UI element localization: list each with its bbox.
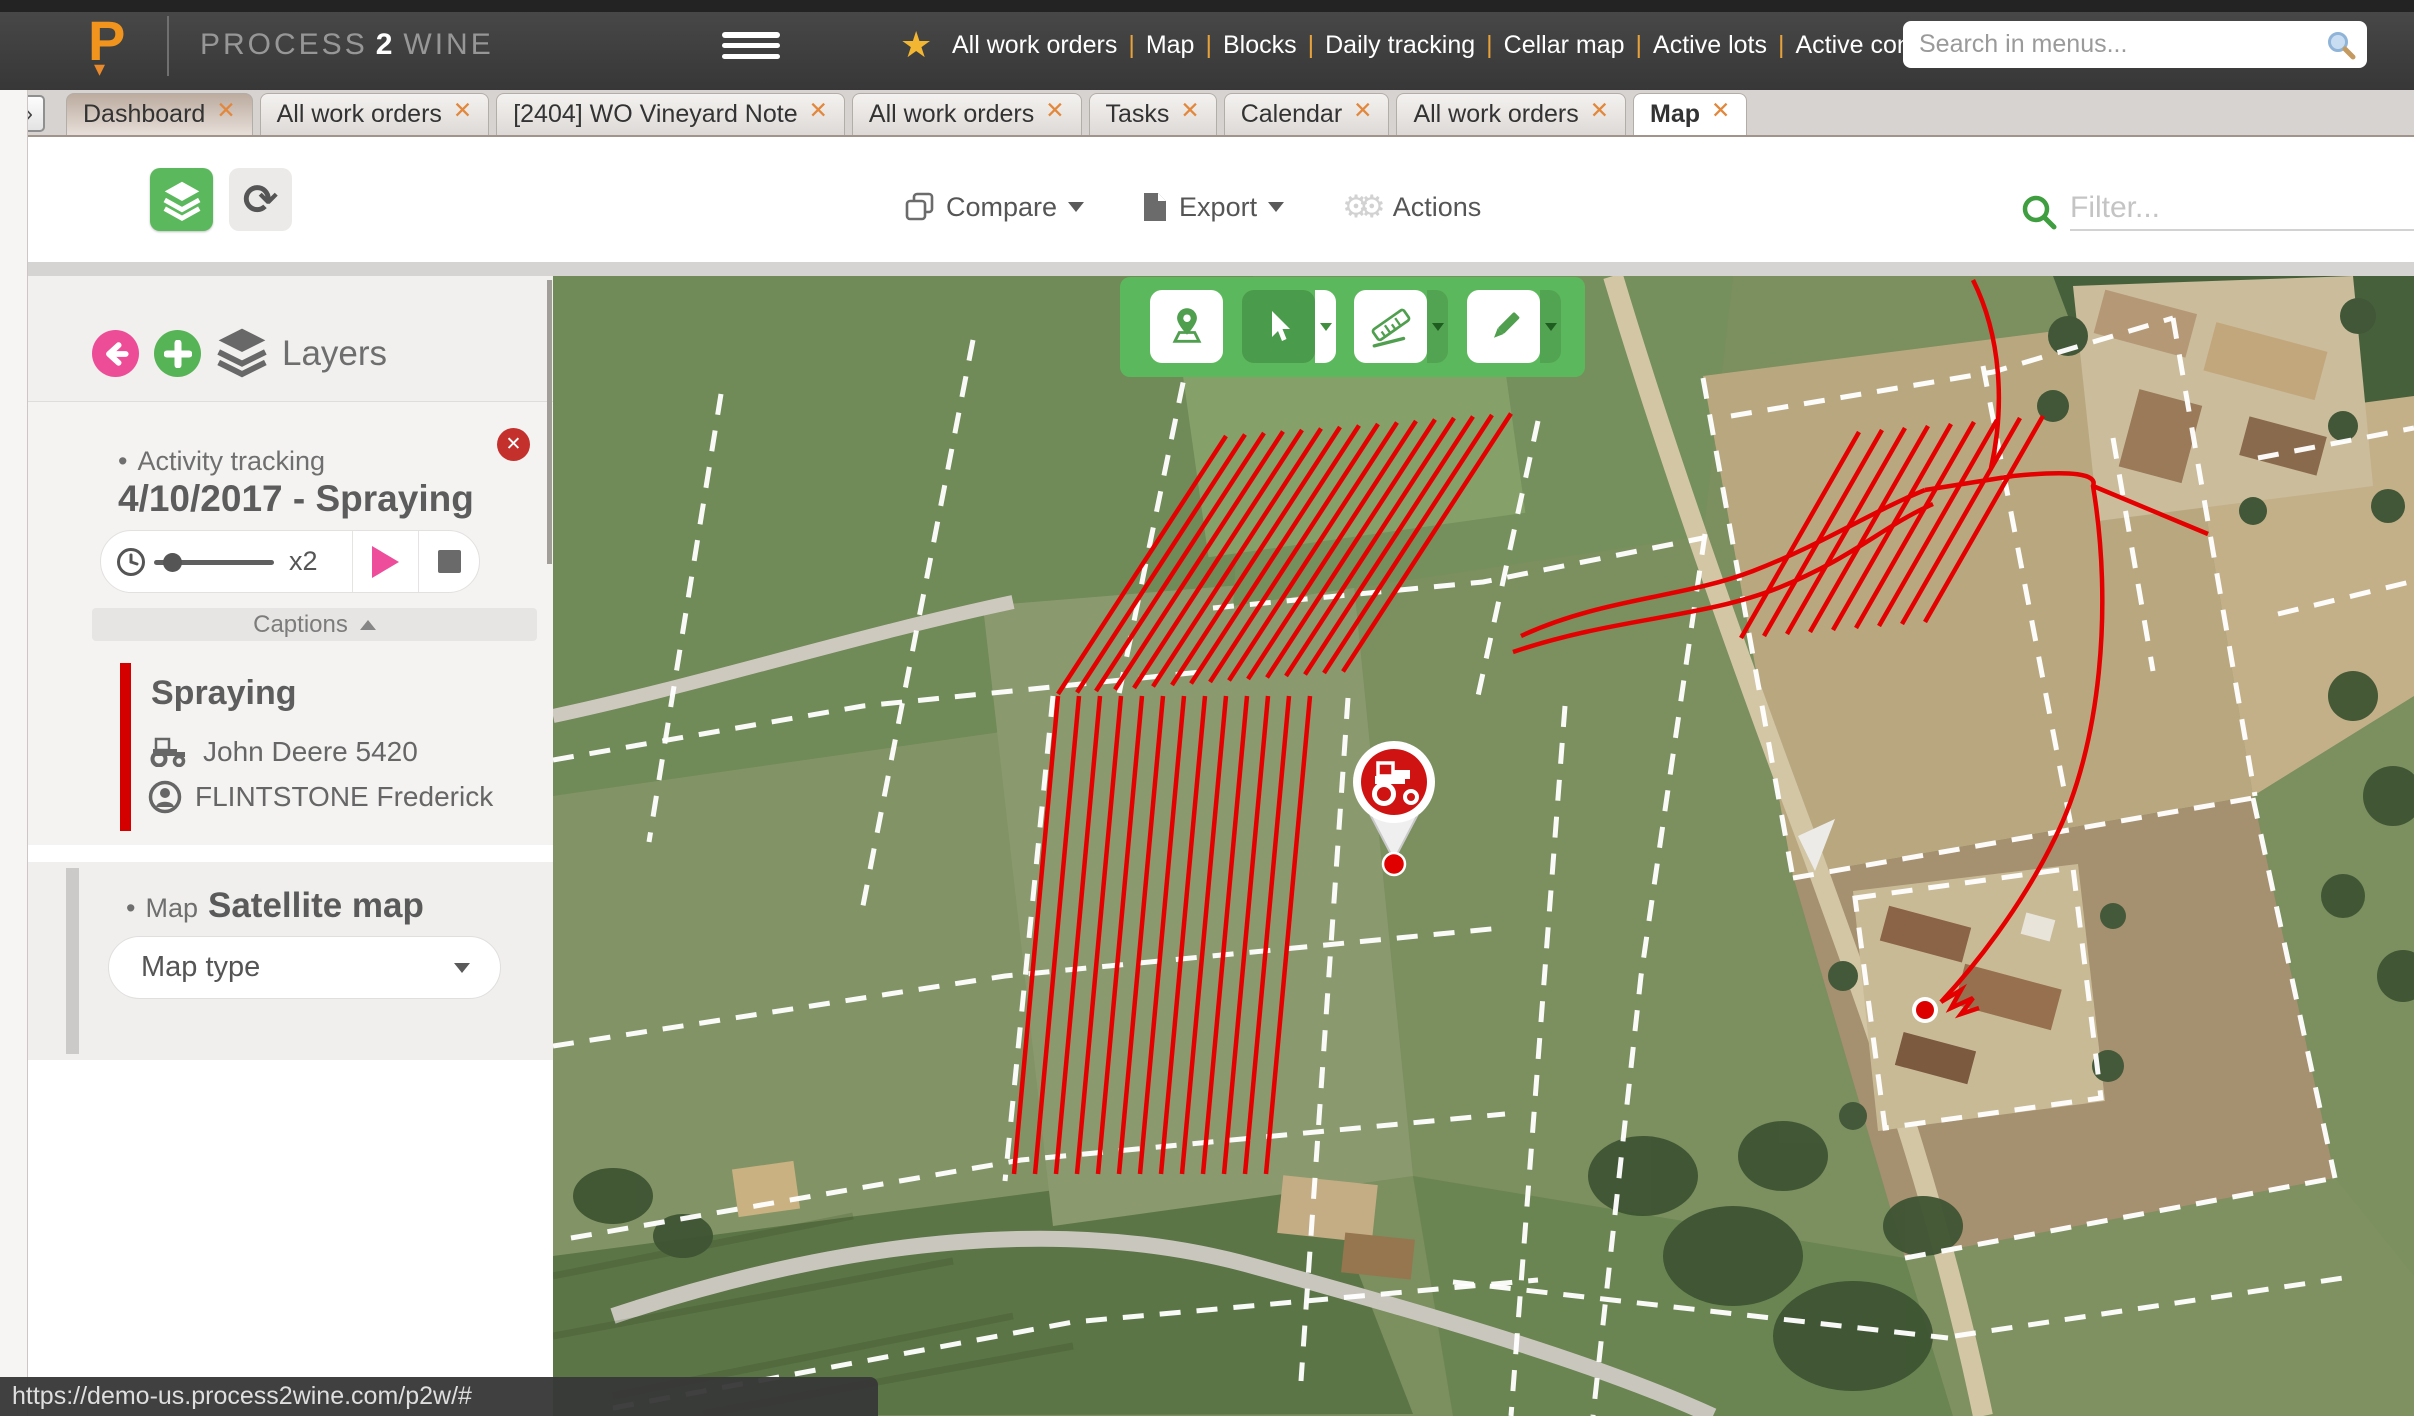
search-icon[interactable]	[2325, 29, 2357, 61]
clock-icon	[116, 547, 146, 577]
play-icon	[372, 546, 399, 578]
refresh-icon: ⟳	[243, 175, 278, 224]
add-layer-button[interactable]	[154, 330, 201, 377]
arrow-left-icon	[101, 339, 131, 369]
map-section-label: • Map Satellite map	[126, 886, 424, 926]
close-activity-button[interactable]: ✕	[497, 428, 530, 461]
tab-all-work-orders[interactable]: All work orders✕	[852, 93, 1082, 135]
left-rail	[0, 90, 28, 1416]
filter-input[interactable]	[2070, 187, 2414, 231]
tab-all-work-orders[interactable]: All work orders✕	[260, 93, 490, 135]
activity-label-text: Activity tracking	[137, 446, 325, 477]
panel-title: Layers	[282, 334, 387, 374]
tab-tasks[interactable]: Tasks✕	[1089, 93, 1217, 135]
caret-down-icon	[1320, 323, 1332, 331]
tab-close-icon[interactable]: ✕	[1045, 97, 1064, 124]
tab--2404-wo-vineyard-note[interactable]: [2404] WO Vineyard Note✕	[496, 93, 845, 135]
back-button[interactable]	[92, 330, 139, 377]
timeline-segment: x2	[101, 531, 352, 592]
actions-button[interactable]: ⚙⚙ Actions	[1342, 189, 1481, 225]
activity-heading: 4/10/2017 - Spraying	[118, 478, 474, 520]
menu-separator: |	[1767, 31, 1796, 60]
menu-item-cellar-map[interactable]: Cellar map	[1504, 31, 1625, 60]
menu-item-active-lots[interactable]: Active lots	[1653, 31, 1767, 60]
panel-scrollbar[interactable]	[547, 280, 552, 564]
map-type-label: Map type	[141, 951, 260, 984]
locate-button[interactable]	[1150, 290, 1223, 363]
stop-icon	[438, 550, 461, 573]
time-slider[interactable]	[154, 552, 274, 572]
export-button[interactable]: Export	[1142, 189, 1284, 225]
menu-separator: |	[1117, 31, 1146, 60]
brand-text: PROCESS 2 WINE	[200, 0, 494, 90]
tab-bar: » Dashboard✕All work orders✕[2404] WO Vi…	[0, 90, 2414, 137]
stop-button[interactable]	[418, 531, 479, 592]
caret-down-icon	[1432, 323, 1444, 331]
menu-item-blocks[interactable]: Blocks	[1223, 31, 1297, 60]
center-tools: Compare Export ⚙⚙ Actions	[905, 189, 1481, 225]
layers-toggle-button[interactable]	[150, 168, 213, 231]
map-heading: Satellite map	[208, 886, 424, 926]
actions-label: Actions	[1393, 192, 1482, 223]
tab-label: Map	[1650, 100, 1700, 129]
logo-divider	[167, 16, 169, 76]
captions-toggle[interactable]: Captions	[92, 608, 537, 641]
measure-options-caret[interactable]	[1427, 290, 1448, 363]
hamburger-icon[interactable]	[722, 32, 780, 59]
gears-icon: ⚙⚙	[1342, 189, 1374, 225]
brand-2: 2	[376, 28, 396, 62]
panel-inner-scrollbar[interactable]	[66, 868, 79, 1054]
export-caret-icon	[1268, 202, 1284, 212]
app-window: P ▾ PROCESS 2 WINE ★ All work orders|Map…	[0, 0, 2414, 1416]
menu-search-input[interactable]	[1919, 30, 2325, 59]
pencil-icon	[1483, 306, 1525, 348]
draw-button[interactable]	[1467, 290, 1540, 363]
map-toolbar-row: ⟳ Compare Export ⚙⚙ Actio	[0, 139, 2414, 262]
activity-section-label: • Activity tracking	[118, 446, 325, 477]
tab-label: All work orders	[869, 100, 1034, 129]
tab-label: Tasks	[1106, 100, 1170, 129]
satellite-map[interactable]	[553, 276, 2414, 1416]
favorites-star-icon[interactable]: ★	[900, 0, 932, 90]
status-url: https://demo-us.process2wine.com/p2w/#	[12, 1382, 472, 1411]
select-options-caret[interactable]	[1315, 290, 1336, 363]
panel-layers-icon	[214, 326, 270, 383]
tab-label: All work orders	[1413, 100, 1578, 129]
caret-down-icon	[454, 963, 470, 973]
compare-caret-icon	[1068, 202, 1084, 212]
bullet: •	[118, 446, 127, 477]
operator-row: FLINTSTONE Frederick	[148, 780, 493, 814]
player-controls: x2	[100, 530, 480, 593]
status-bar: https://demo-us.process2wine.com/p2w/#	[0, 1377, 878, 1416]
captions-label: Captions	[253, 611, 348, 639]
tab-close-icon[interactable]: ✕	[1353, 97, 1372, 124]
tab-label: Dashboard	[83, 100, 205, 129]
menu-separator: |	[1194, 31, 1223, 60]
tab-dashboard[interactable]: Dashboard✕	[66, 93, 253, 135]
tab-label: Calendar	[1241, 100, 1342, 129]
tab-close-icon[interactable]: ✕	[809, 97, 828, 124]
tab-label: All work orders	[277, 100, 442, 129]
pin-icon	[1165, 305, 1209, 349]
grape-icon: ▾	[94, 56, 105, 82]
machine-label: John Deere 5420	[203, 736, 418, 768]
operator-label: FLINTSTONE Frederick	[195, 781, 493, 813]
speed-label[interactable]: x2	[289, 546, 318, 577]
compare-label: Compare	[946, 192, 1057, 223]
plus-icon	[164, 340, 192, 368]
cursor-icon	[1259, 307, 1299, 347]
layers-icon	[159, 177, 205, 223]
menu-item-daily-tracking[interactable]: Daily tracking	[1325, 31, 1475, 60]
menu-item-all-work-orders[interactable]: All work orders	[952, 31, 1117, 60]
tab-close-icon[interactable]: ✕	[1180, 97, 1199, 124]
slider-handle[interactable]	[163, 553, 182, 572]
tab-close-icon[interactable]: ✕	[216, 97, 235, 124]
filter-search-icon	[2020, 193, 2058, 231]
export-icon	[1142, 192, 1168, 222]
brand-wine: WINE	[403, 28, 493, 62]
menu-separator: |	[1475, 31, 1504, 60]
measure-button[interactable]	[1354, 290, 1427, 363]
tab-close-icon[interactable]: ✕	[1590, 97, 1609, 124]
top-bar: P ▾ PROCESS 2 WINE ★ All work orders|Map…	[0, 0, 2414, 90]
map-label-text: Map	[145, 893, 198, 924]
menu-separator: |	[1625, 31, 1654, 60]
machine-row: John Deere 5420	[148, 736, 418, 768]
tab-close-icon[interactable]: ✕	[1711, 97, 1730, 124]
tab-close-icon[interactable]: ✕	[453, 97, 472, 124]
map-draw-toolbar	[1120, 277, 1585, 377]
tab-map[interactable]: Map✕	[1633, 93, 1747, 135]
caption-color-bar	[120, 663, 131, 831]
play-button[interactable]	[352, 531, 418, 592]
tab-strip: Dashboard✕All work orders✕[2404] WO Vine…	[66, 93, 1747, 135]
bullet: •	[126, 893, 135, 924]
tab-all-work-orders[interactable]: All work orders✕	[1396, 93, 1626, 135]
map-type-dropdown[interactable]: Map type	[108, 936, 501, 999]
ruler-icon	[1368, 304, 1414, 350]
draw-options-caret[interactable]	[1540, 290, 1561, 363]
menu-search-box	[1903, 21, 2367, 68]
refresh-button[interactable]: ⟳	[229, 168, 292, 231]
person-icon	[148, 780, 182, 814]
export-label: Export	[1179, 192, 1257, 223]
compare-icon	[905, 192, 935, 222]
compare-button[interactable]: Compare	[905, 189, 1084, 225]
caret-up-icon	[360, 620, 376, 630]
select-button[interactable]	[1242, 290, 1315, 363]
caption-title: Spraying	[151, 674, 296, 713]
content-divider	[28, 262, 2414, 276]
caret-down-icon	[1545, 323, 1557, 331]
position-marker[interactable]	[1912, 997, 1938, 1023]
menu-separator: |	[1297, 31, 1326, 60]
tractor-icon	[148, 737, 190, 767]
menu-item-map[interactable]: Map	[1146, 31, 1195, 60]
tab-calendar[interactable]: Calendar✕	[1224, 93, 1390, 135]
tab-label: [2404] WO Vineyard Note	[513, 100, 797, 129]
brand-process: PROCESS	[200, 28, 368, 62]
filter-group	[2020, 187, 2414, 231]
